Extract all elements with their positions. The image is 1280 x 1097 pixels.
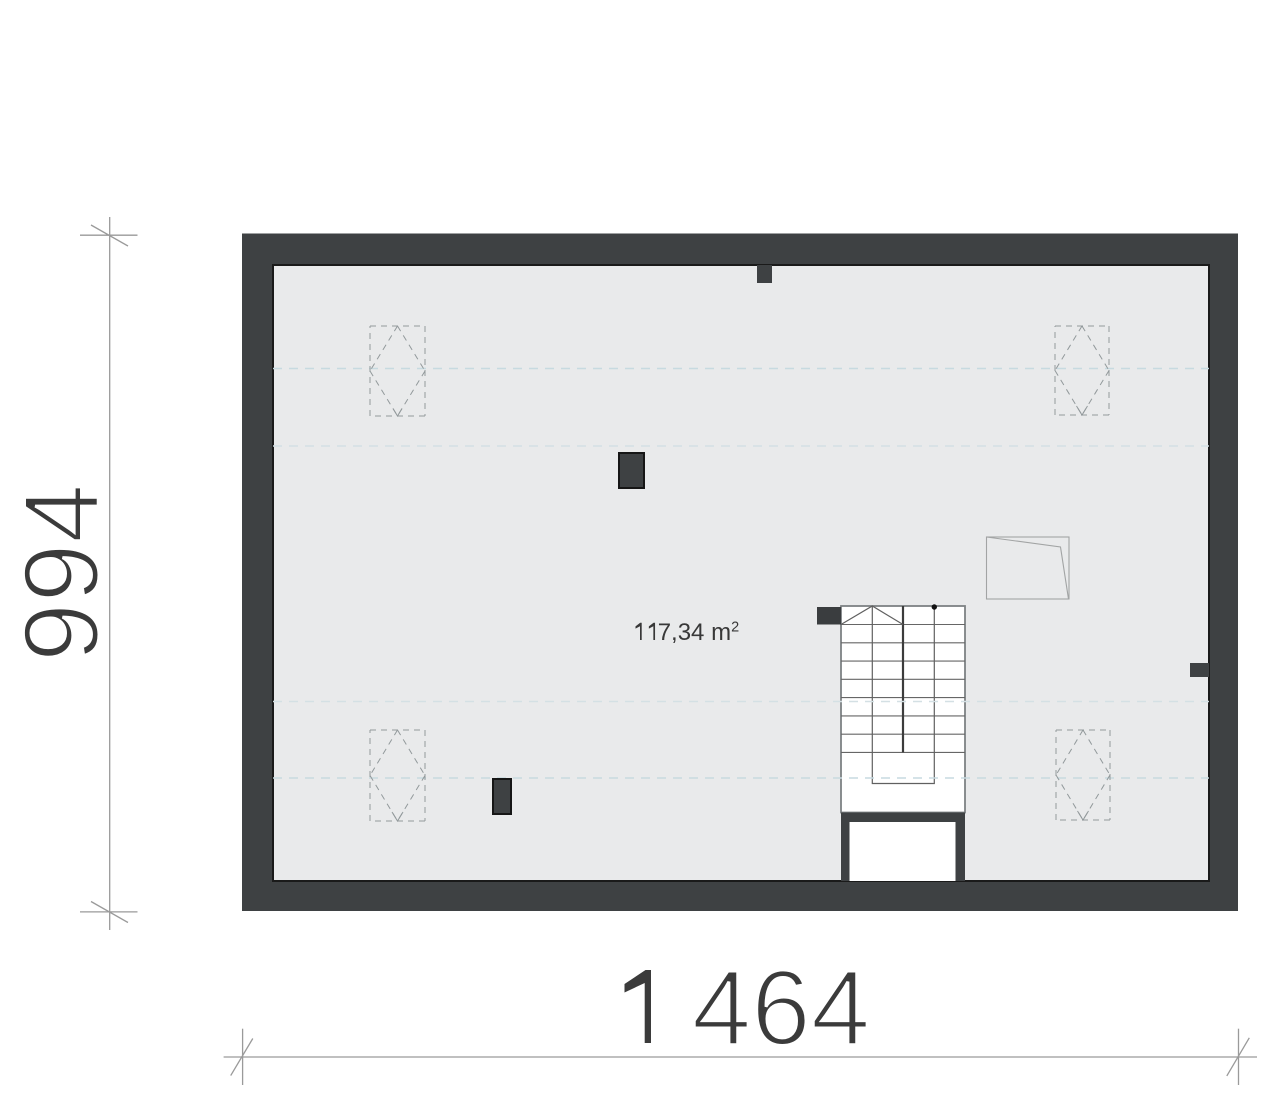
- svg-text:7,34 m2: 7,34 m2: [658, 619, 739, 646]
- svg-text:994: 994: [1, 484, 121, 663]
- svg-text:464: 464: [692, 948, 871, 1068]
